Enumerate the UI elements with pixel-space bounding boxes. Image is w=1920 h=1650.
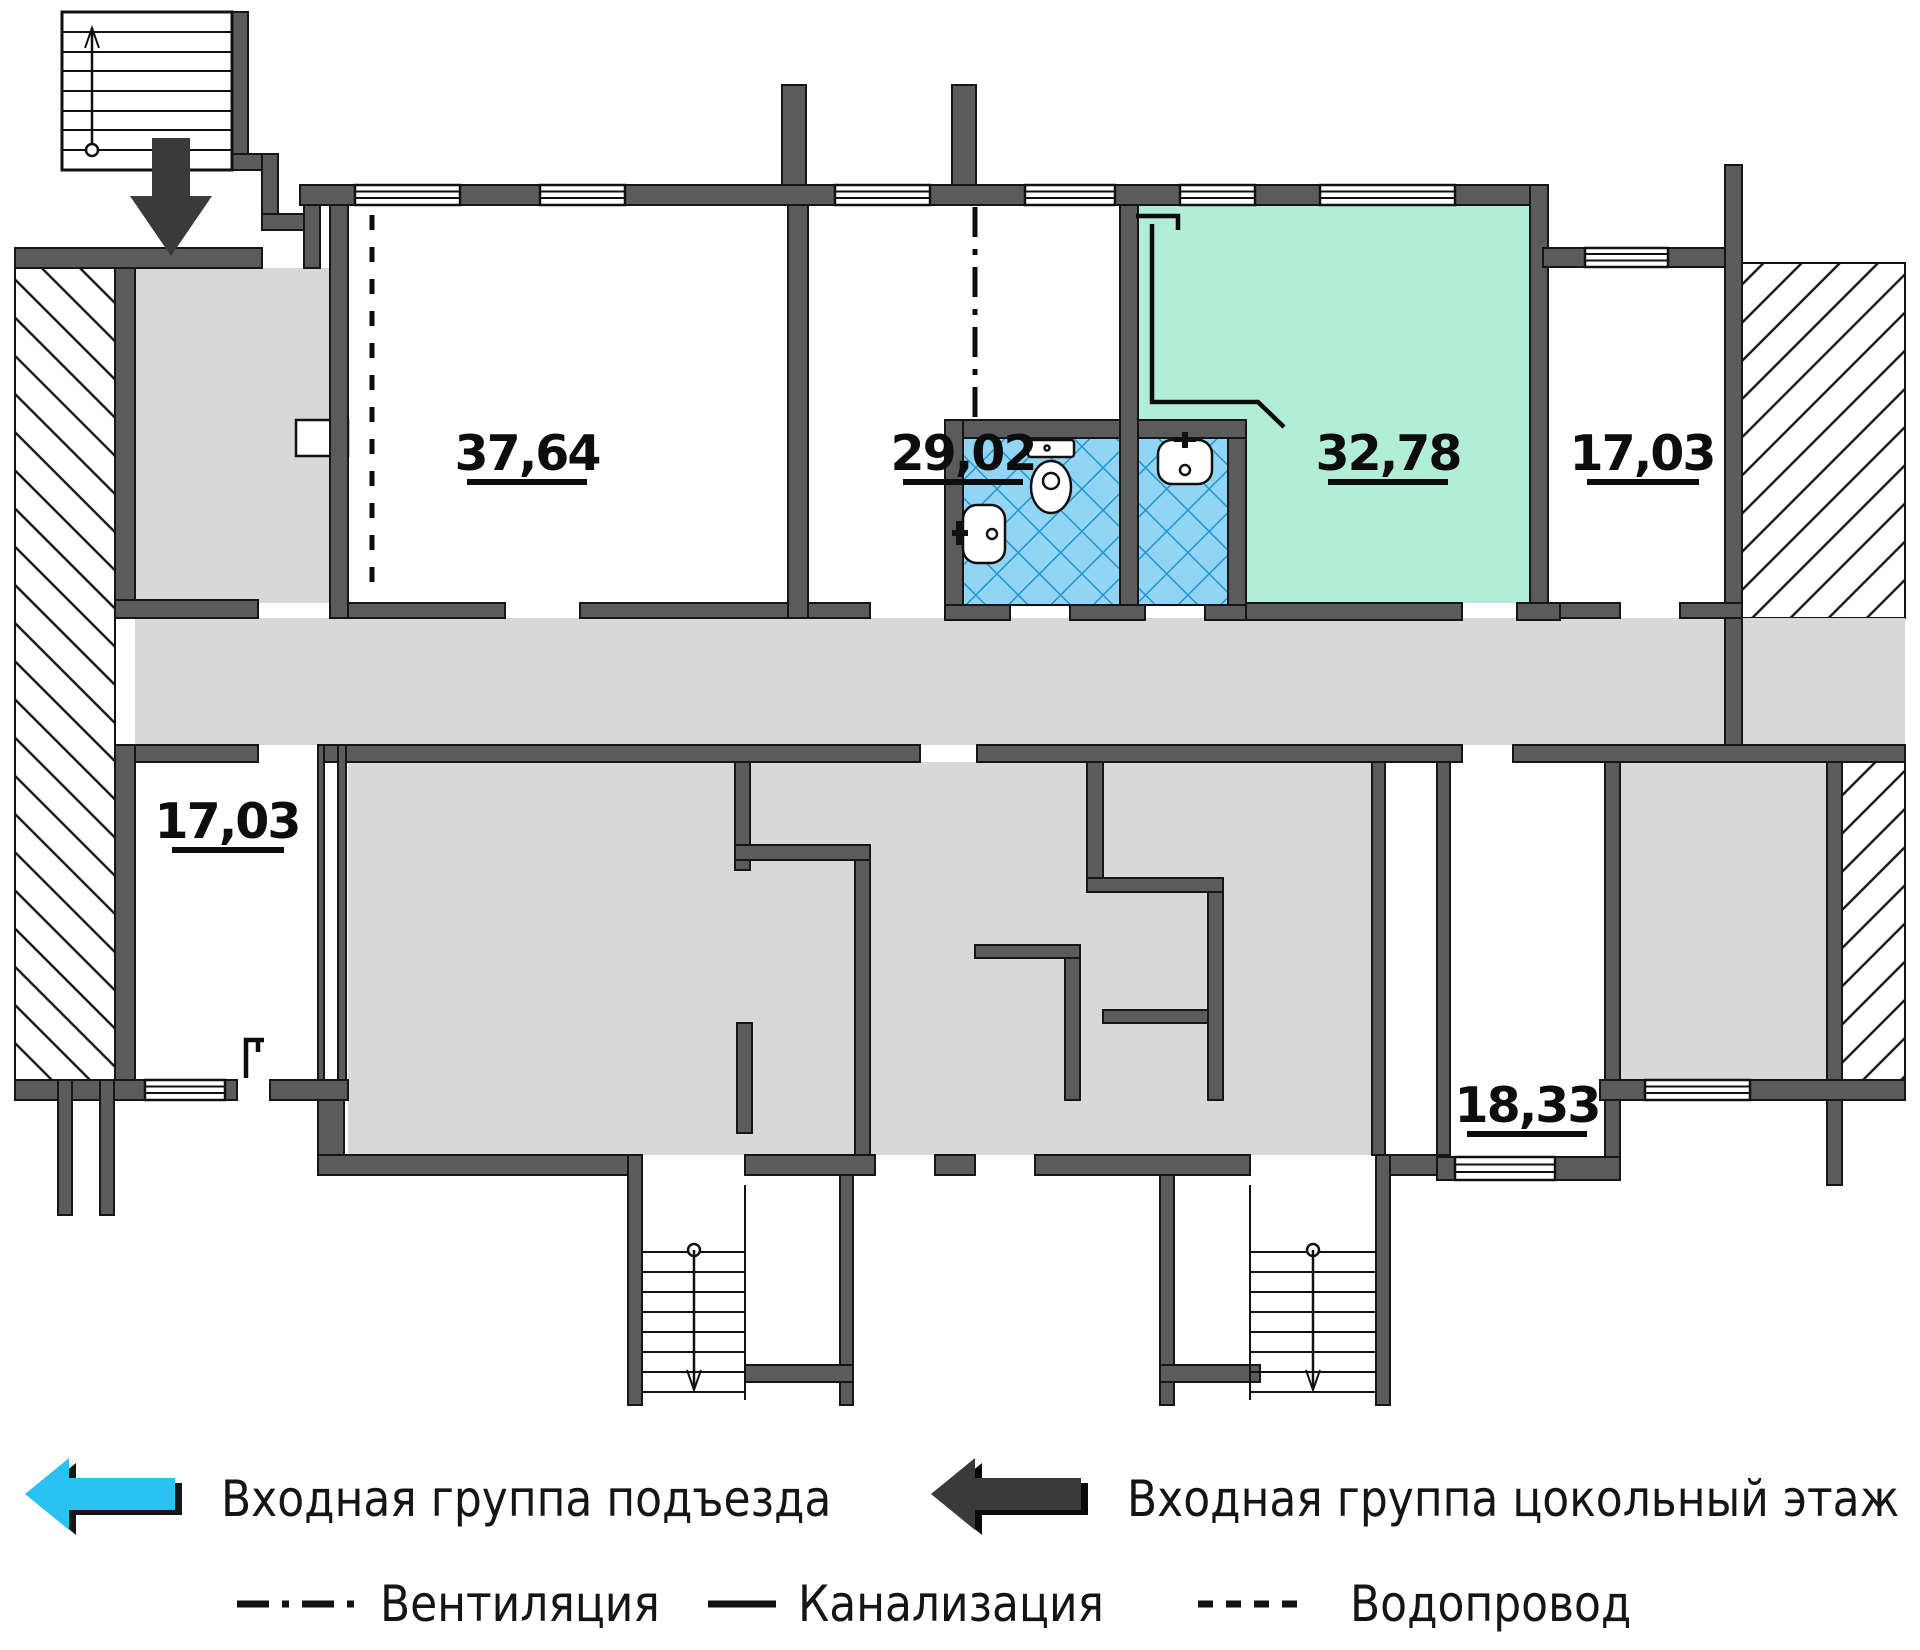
label-underline [903, 479, 1023, 485]
legend-entrances: Входная группа подъезда Входная группа ц… [25, 1458, 1920, 1540]
legend-lines: Вентиляция Канализация Водопровод [235, 1575, 1670, 1633]
window [355, 185, 460, 205]
legend-sewerage-label: Канализация [798, 1575, 1104, 1633]
door-swing-17-03-bottom [246, 1040, 264, 1078]
label-underline [467, 479, 587, 485]
label-underline [1328, 479, 1448, 485]
window [1025, 185, 1115, 205]
label-underline [1587, 479, 1699, 485]
window [835, 185, 930, 205]
hatch-left-wall [15, 268, 115, 1080]
entrance-main-arrow-icon [25, 1458, 183, 1540]
corridor-floor [135, 618, 1905, 745]
partition-gap [324, 745, 338, 1080]
ventilation-line-icon [235, 1597, 360, 1611]
window [1320, 185, 1455, 205]
sewerage-line-icon [706, 1597, 778, 1611]
label-underline [1467, 1131, 1587, 1137]
legend-entrance-basement-label: Входная группа цокольный этаж [1127, 1470, 1899, 1528]
room-area-label: 18,33 [1455, 1077, 1600, 1134]
window [540, 185, 625, 205]
floor-plan: 37,64 29,02 32,78 17,03 17,03 18,33 [0, 0, 1920, 1420]
legend-entrance-main-label: Входная группа подъезда [221, 1470, 831, 1528]
room-area-label: 32,78 [1316, 425, 1461, 482]
window [145, 1080, 225, 1100]
entrance-basement-arrow-icon [931, 1458, 1089, 1540]
floor-plan-page: 37,64 29,02 32,78 17,03 17,03 18,33 Вход… [0, 0, 1920, 1650]
legend-water-label: Водопровод [1350, 1575, 1631, 1633]
window [1585, 248, 1668, 267]
window [1455, 1157, 1555, 1180]
label-underline [172, 847, 284, 853]
legend-ventilation-label: Вентиляция [380, 1575, 660, 1633]
water-line-icon [1196, 1597, 1308, 1611]
room-area-label: 17,03 [1570, 425, 1715, 482]
right-bottom-room-floor [1620, 762, 1827, 1080]
room-area-label: 29,02 [891, 425, 1036, 482]
room-area-label: 37,64 [455, 425, 600, 482]
stairs-top-left [62, 12, 232, 170]
window [1645, 1080, 1750, 1100]
stairs-bottom-right [1250, 1185, 1376, 1400]
stairs-bottom-left [642, 1185, 745, 1400]
room-area-label: 17,03 [155, 793, 300, 850]
window [1180, 185, 1255, 205]
